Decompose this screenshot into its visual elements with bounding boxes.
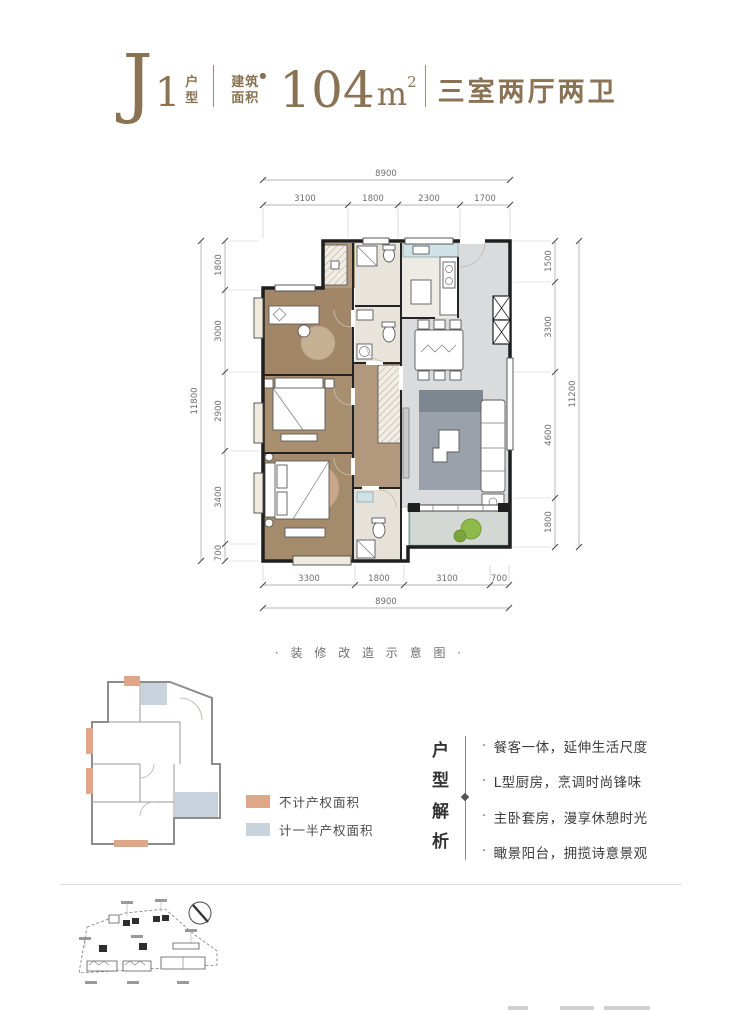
dim-label: 1800 bbox=[368, 574, 390, 584]
dim-label: 3100 bbox=[436, 574, 458, 584]
dim-left: 11800 1800 3000 2900 3400 700 bbox=[190, 238, 228, 564]
room-configuration: 三室两厅两卫 bbox=[438, 70, 618, 109]
site-plan bbox=[65, 893, 230, 998]
dim-label: 11200 bbox=[568, 380, 578, 407]
analysis-item: ·餐客一体，延伸生活尺度 bbox=[482, 736, 648, 756]
area-diagram-plan bbox=[62, 668, 240, 856]
legend-item: 不计产权面积 bbox=[246, 792, 374, 811]
legend-swatch-orange bbox=[246, 795, 270, 808]
analysis-item: ·瞰景阳台，拥揽诗意景观 bbox=[482, 842, 648, 862]
dim-label: 1800 bbox=[362, 194, 384, 204]
dim-label: 700 bbox=[214, 545, 224, 561]
analysis-item: ·L型厨房，烹调时尚锋味 bbox=[482, 771, 648, 791]
main-floor-plan: 8900 3100 1800 2300 1700 11800 1800 3000… bbox=[163, 158, 583, 638]
dim-label: 3400 bbox=[214, 486, 224, 508]
dim-label: 1700 bbox=[474, 194, 496, 204]
plan-number: 1 bbox=[155, 75, 180, 111]
legend-swatch-blue bbox=[246, 823, 270, 836]
layout-analysis: 户 型 解 析 ·餐客一体，延伸生活尺度 ·L型厨房，烹调时尚锋味 ·主卧套房，… bbox=[432, 736, 648, 862]
floorplan-page: J 1 户 型 建筑● 面积 104 m 2 三室两厅两卫 bbox=[0, 0, 740, 1013]
area-unit: m bbox=[377, 78, 407, 110]
section-divider bbox=[60, 884, 682, 885]
bullet-icon: · bbox=[482, 739, 487, 754]
dim-label: 2900 bbox=[214, 400, 224, 422]
dim-label: 1500 bbox=[544, 250, 554, 272]
dim-label: 4600 bbox=[544, 424, 554, 446]
header-divider-2 bbox=[425, 65, 426, 107]
analysis-title: 户 型 解 析 bbox=[432, 736, 449, 852]
analysis-item: ·主卧套房，漫享休憩时光 bbox=[482, 807, 648, 827]
bullet-icon: · bbox=[482, 844, 487, 859]
dim-right: 1500 3300 4600 1800 11200 bbox=[544, 238, 582, 550]
dim-label: 1800 bbox=[214, 254, 224, 276]
plan-caption: · 装 修 改 造 示 意 图 · bbox=[0, 644, 740, 661]
dim-label: 3000 bbox=[214, 320, 224, 342]
header-divider bbox=[213, 65, 214, 107]
legend: 不计产权面积 计一半产权面积 bbox=[246, 792, 374, 848]
analysis-items: ·餐客一体，延伸生活尺度 ·L型厨房，烹调时尚锋味 ·主卧套房，漫享休憩时光 ·… bbox=[482, 736, 648, 862]
dim-label: 3100 bbox=[294, 194, 316, 204]
page-title: J 1 户 型 建筑● 面积 104 m 2 三室两厅两卫 bbox=[0, 52, 740, 111]
plan-type-label: 户 型 bbox=[185, 75, 199, 108]
dim-label: 700 bbox=[491, 574, 507, 584]
area-label: 建筑● 面积 bbox=[231, 75, 267, 108]
area-value: 104 bbox=[279, 69, 374, 112]
dim-label: 3300 bbox=[298, 574, 320, 584]
dim-label: 3300 bbox=[544, 316, 554, 338]
legend-item: 计一半产权面积 bbox=[246, 820, 374, 839]
dim-label: 8900 bbox=[375, 597, 397, 607]
bullet-icon: · bbox=[482, 809, 487, 824]
dim-label: 11800 bbox=[190, 387, 200, 414]
bullet-icon: · bbox=[482, 774, 487, 789]
dim-bottom: 3300 1800 3100 700 8900 bbox=[260, 574, 512, 611]
dim-top: 8900 3100 1800 2300 1700 bbox=[260, 169, 513, 208]
analysis-divider bbox=[465, 736, 466, 860]
legend-label: 计一半产权面积 bbox=[279, 820, 374, 839]
plan-letter: J bbox=[122, 52, 152, 111]
diamond-icon bbox=[461, 793, 469, 801]
dim-label: 2300 bbox=[418, 194, 440, 204]
dim-label: 8900 bbox=[375, 169, 397, 179]
shaft-boxes bbox=[493, 296, 510, 344]
area-superscript: 2 bbox=[407, 73, 417, 91]
registered-dot-icon: ● bbox=[259, 71, 267, 80]
legend-label: 不计产权面积 bbox=[279, 792, 360, 811]
dim-label: 1800 bbox=[544, 511, 554, 533]
compass-icon bbox=[189, 902, 211, 924]
